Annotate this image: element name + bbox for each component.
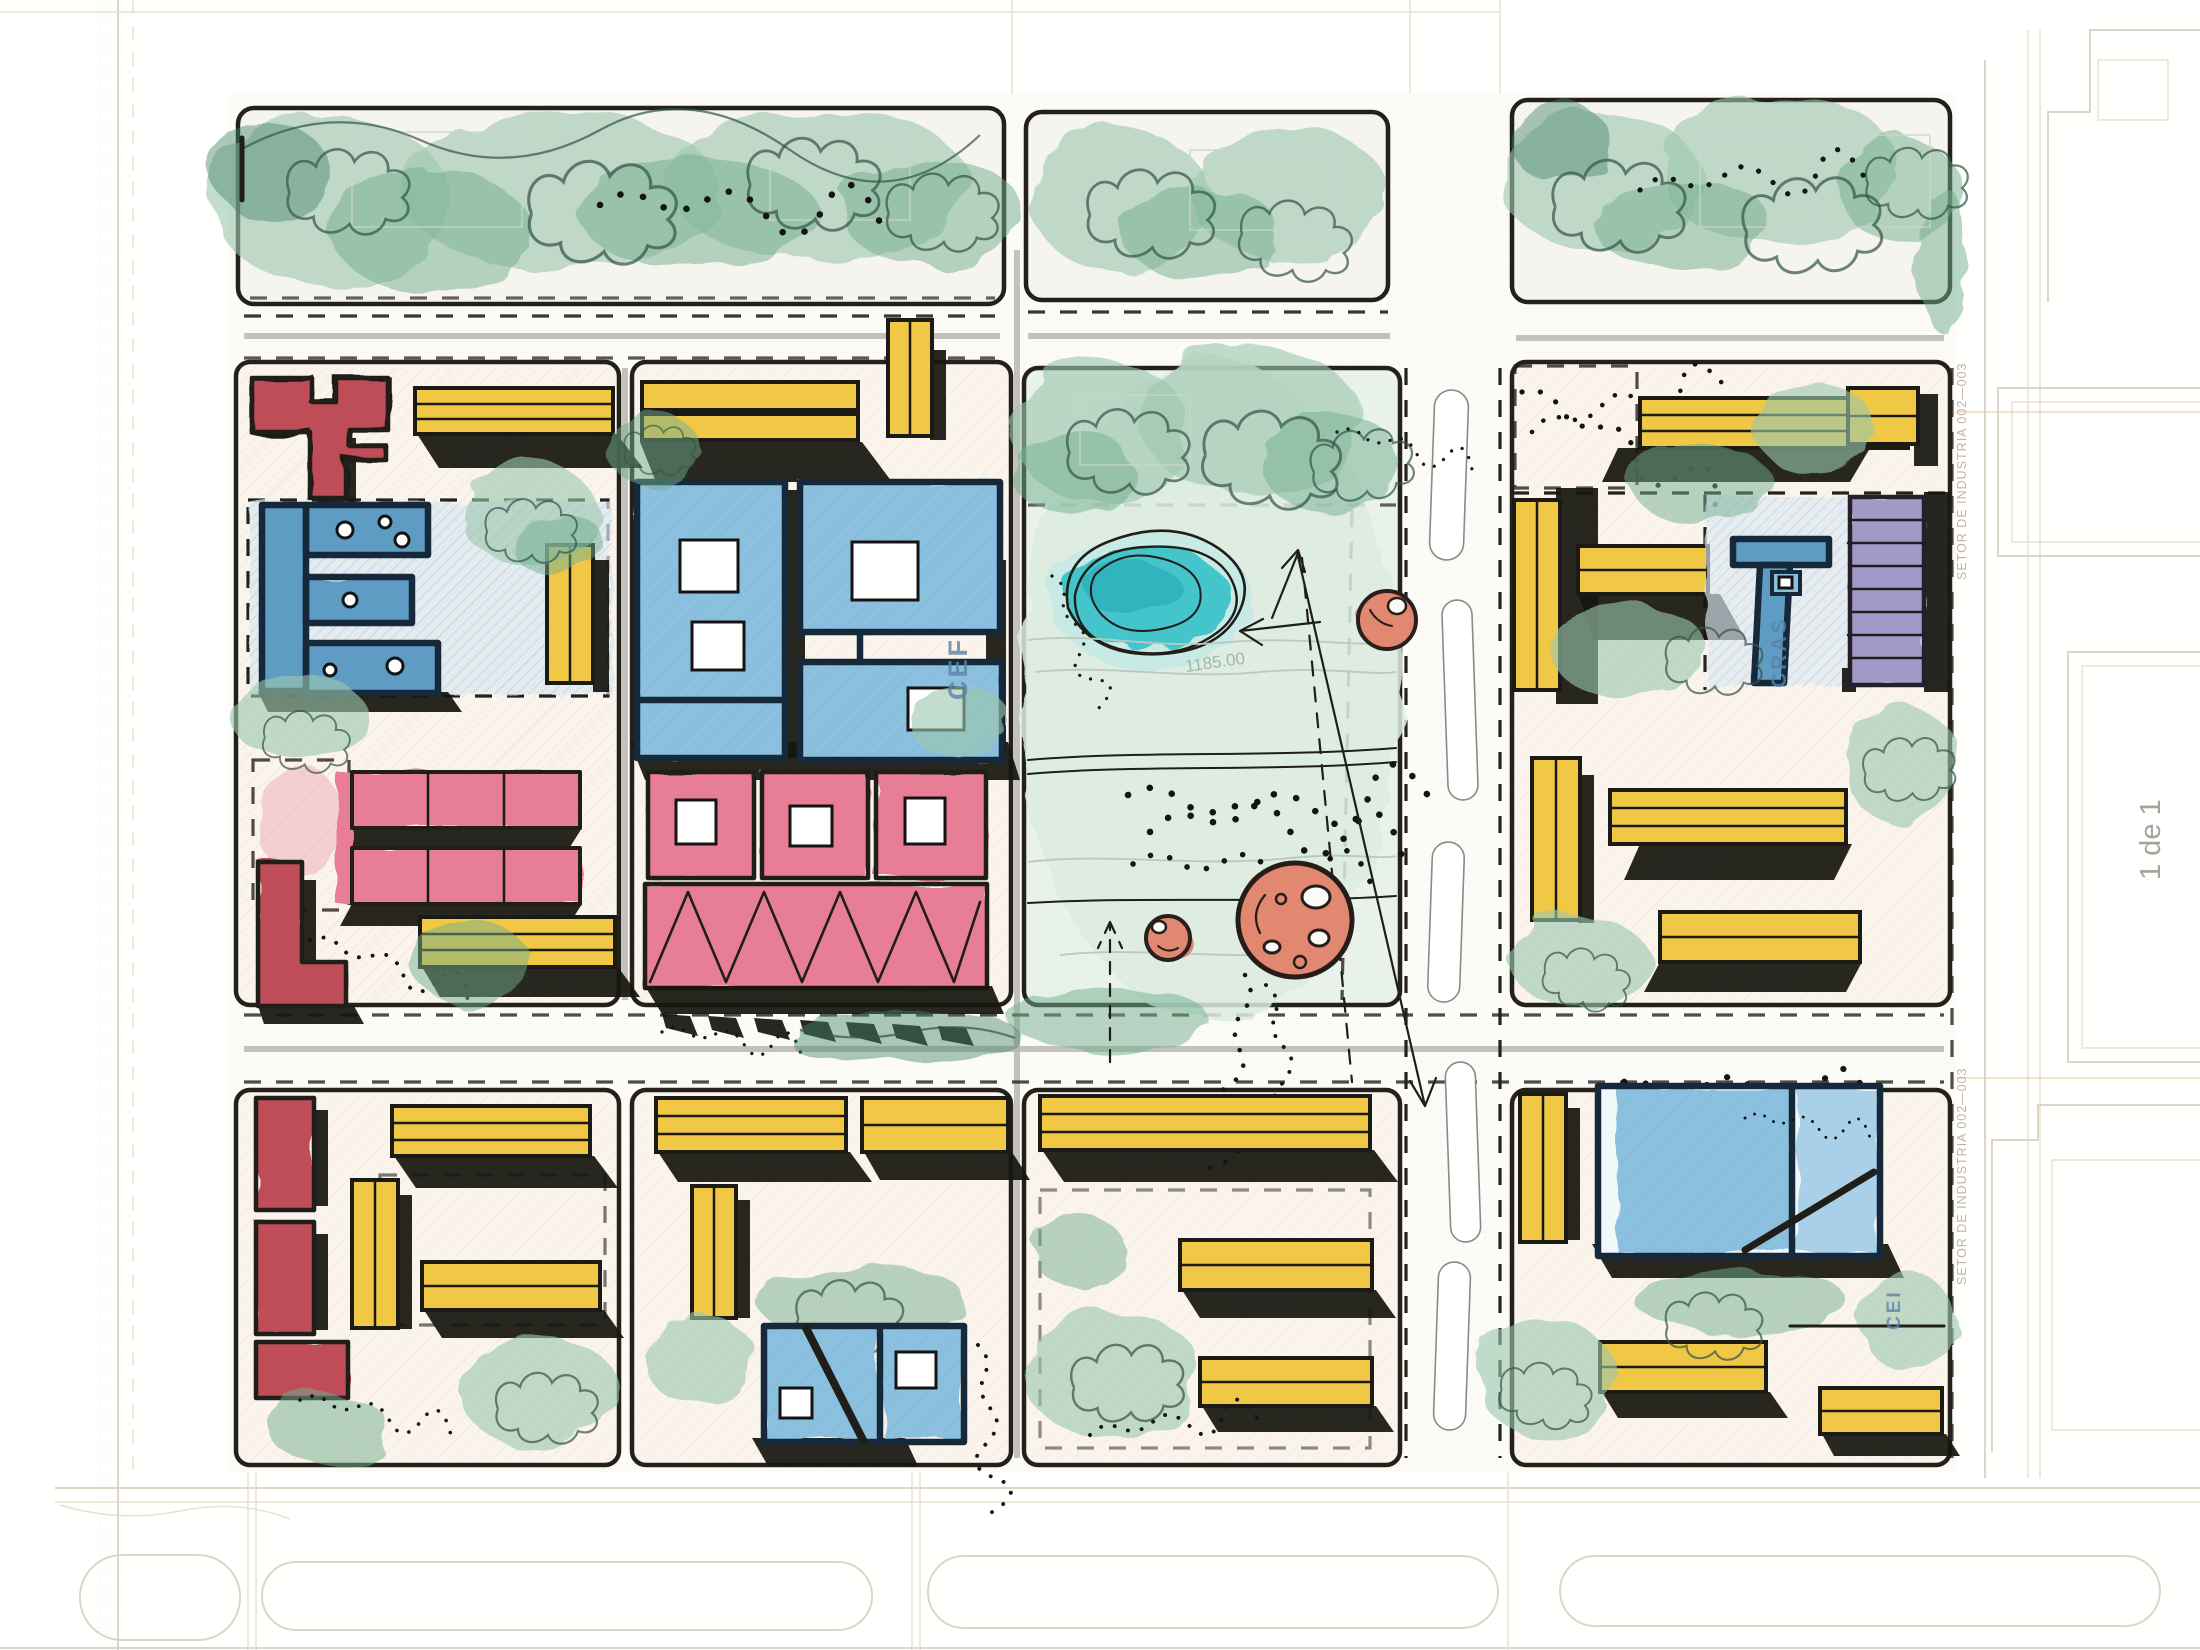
yellow-bar	[1820, 1388, 1960, 1456]
label-cei: CEI	[1884, 1289, 1905, 1330]
block-b3-buildings	[1020, 1096, 1398, 1447]
yellow-bar	[392, 1106, 618, 1188]
yellow-bar	[422, 1262, 624, 1338]
yellow-bar	[1200, 1358, 1394, 1432]
label-sheet-number: 1 de 1	[2135, 799, 2167, 880]
label-sector-upper: SETOR DE INDUSTRIA 002—003	[1955, 362, 1969, 580]
label-cef: CEF	[943, 637, 973, 700]
yellow-bar	[1180, 1240, 1396, 1318]
yellow-bar	[692, 1186, 750, 1318]
factory-pink-building	[645, 772, 1004, 1046]
yellow-bar	[1610, 790, 1852, 880]
yellow-bar	[1040, 1096, 1398, 1182]
yellow-bar	[1600, 1342, 1788, 1418]
yellow-bar	[1520, 1094, 1580, 1242]
yellow-bar	[862, 1098, 1030, 1180]
purple-building	[1842, 492, 1950, 692]
masterplan-drawing: CEF CRAS CEI 1185.00 SETOR DE INDUSTRIA …	[0, 0, 2200, 1650]
blue-kindergarten-building	[752, 1326, 964, 1466]
yellow-bar	[352, 1180, 412, 1329]
label-sector-lower: SETOR DE INDUSTRIA 002—003	[1955, 1067, 1969, 1285]
blue-school-building	[1592, 1086, 1904, 1278]
masterplan-sketch: CEF CRAS CEI 1185.00 SETOR DE INDUSTRIA …	[0, 0, 2200, 1650]
yellow-bar	[1532, 758, 1594, 923]
label-cras: CRAS	[1768, 616, 1791, 688]
yellow-bar	[656, 1098, 872, 1182]
block-b1-buildings	[256, 1098, 624, 1465]
yellow-bar	[1644, 912, 1862, 992]
